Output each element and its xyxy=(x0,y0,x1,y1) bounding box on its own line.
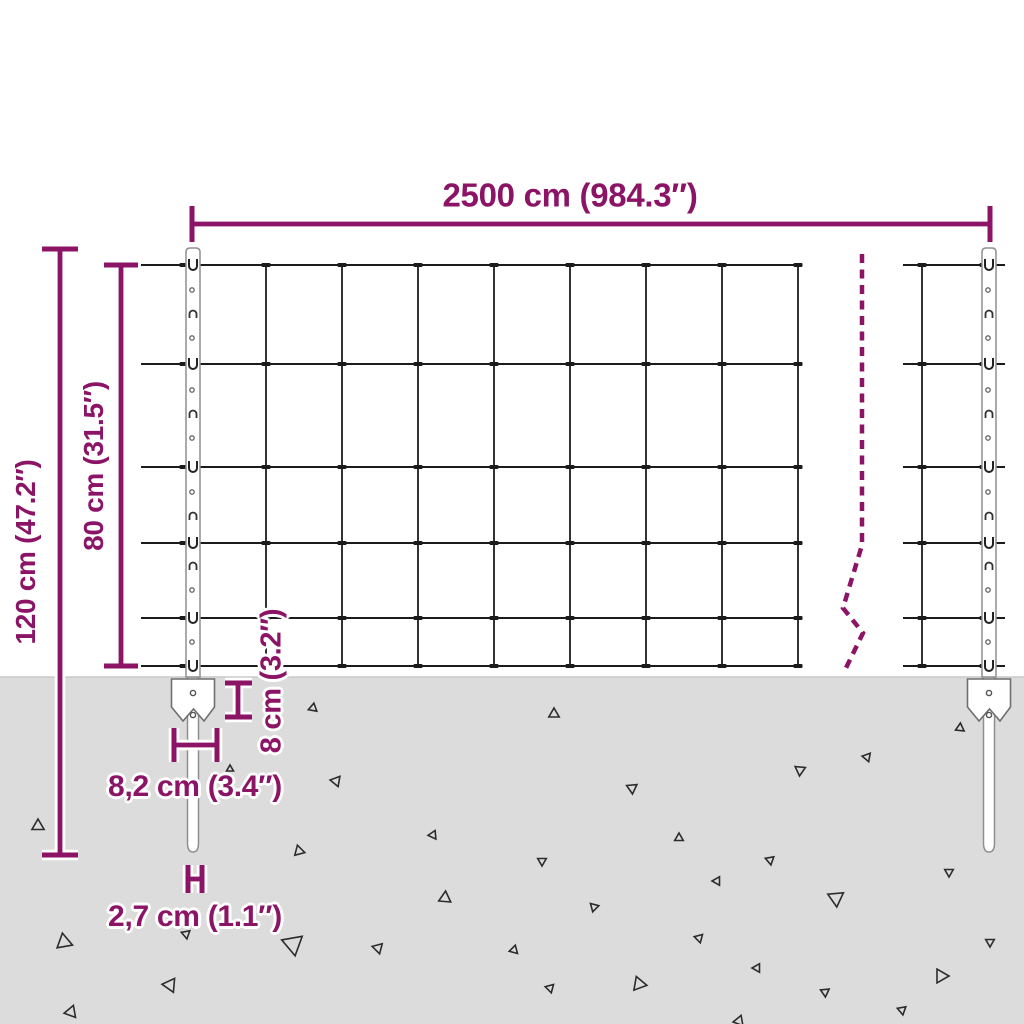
wire-clip-dot xyxy=(566,465,575,469)
dim-mesh-height xyxy=(104,265,138,666)
wire-clip-dot xyxy=(490,541,499,545)
wire-clip-dot xyxy=(718,664,727,668)
fence-mesh xyxy=(141,263,1005,668)
wire-clip-dot xyxy=(718,465,727,469)
wire-clip-dot xyxy=(414,362,423,366)
wire-clip-dot xyxy=(566,362,575,366)
wire-clip-dot xyxy=(794,616,803,620)
wire-clip-dot xyxy=(414,541,423,545)
wire-clip-dot xyxy=(918,664,927,668)
wire-clip-dot xyxy=(718,362,727,366)
plate-hole xyxy=(986,712,991,717)
label-plate-height: 8 cm (3.2″) xyxy=(258,609,287,753)
wire-clip-dot xyxy=(338,362,347,366)
wire-clip-dot xyxy=(794,664,803,668)
wire-clip-dot xyxy=(414,263,423,267)
wire-clip-dot xyxy=(490,263,499,267)
wire-clip-dot xyxy=(918,263,927,267)
wire-clip-dot xyxy=(794,263,803,267)
wire-clip-dot xyxy=(262,263,271,267)
diagram-canvas xyxy=(0,0,1024,1024)
wire-clip-dot xyxy=(718,616,727,620)
wire-clip-dot xyxy=(794,465,803,469)
wire-clip-dot xyxy=(566,664,575,668)
plate-hole xyxy=(986,690,991,695)
wire-clip-dot xyxy=(642,465,651,469)
wire-clip-dot xyxy=(490,465,499,469)
wire-clip-dot xyxy=(262,465,271,469)
wire-clip-dot xyxy=(718,541,727,545)
wire-clip-dot xyxy=(718,263,727,267)
wire-clip-dot xyxy=(490,362,499,366)
wire-clip-dot xyxy=(642,664,651,668)
wire-clip-dot xyxy=(338,541,347,545)
wire-clip-dot xyxy=(642,362,651,366)
wire-clip-dot xyxy=(918,616,927,620)
wire-clip-dot xyxy=(414,664,423,668)
wire-clip-dot xyxy=(414,465,423,469)
wire-clip-dot xyxy=(794,541,803,545)
plate-hole xyxy=(190,690,195,695)
ground xyxy=(0,677,1024,1024)
label-fence-length: 2500 cm (984.3″) xyxy=(442,179,697,212)
plate-hole xyxy=(190,712,195,717)
label-spike-width: 2,7 cm (1.1″) xyxy=(108,902,282,932)
wire-clip-dot xyxy=(566,263,575,267)
label-plate-width: 8,2 cm (3.4″) xyxy=(108,772,282,802)
fence-dimension-diagram: 2500 cm (984.3″) 120 cm (47.2″) 80 cm (3… xyxy=(0,0,1024,1024)
break-line xyxy=(843,254,863,670)
label-mesh-height: 80 cm (31.5″) xyxy=(80,381,108,551)
wire-clip-dot xyxy=(338,465,347,469)
wire-clip-dot xyxy=(918,465,927,469)
wire-clip-dot xyxy=(490,616,499,620)
label-total-height: 120 cm (47.2″) xyxy=(12,459,40,644)
wire-clip-dot xyxy=(338,263,347,267)
wire-clip-dot xyxy=(262,362,271,366)
wire-clip-dot xyxy=(918,362,927,366)
wire-clip-dot xyxy=(566,541,575,545)
wire-clip-dot xyxy=(642,263,651,267)
wire-clip-dot xyxy=(338,664,347,668)
wire-clip-dot xyxy=(794,362,803,366)
wire-clip-dot xyxy=(642,616,651,620)
wire-clip-dot xyxy=(414,616,423,620)
wire-clip-dot xyxy=(918,541,927,545)
wire-clip-dot xyxy=(642,541,651,545)
wire-clip-dot xyxy=(338,616,347,620)
wire-clip-dot xyxy=(262,541,271,545)
wire-clip-dot xyxy=(490,664,499,668)
wire-clip-dot xyxy=(566,616,575,620)
